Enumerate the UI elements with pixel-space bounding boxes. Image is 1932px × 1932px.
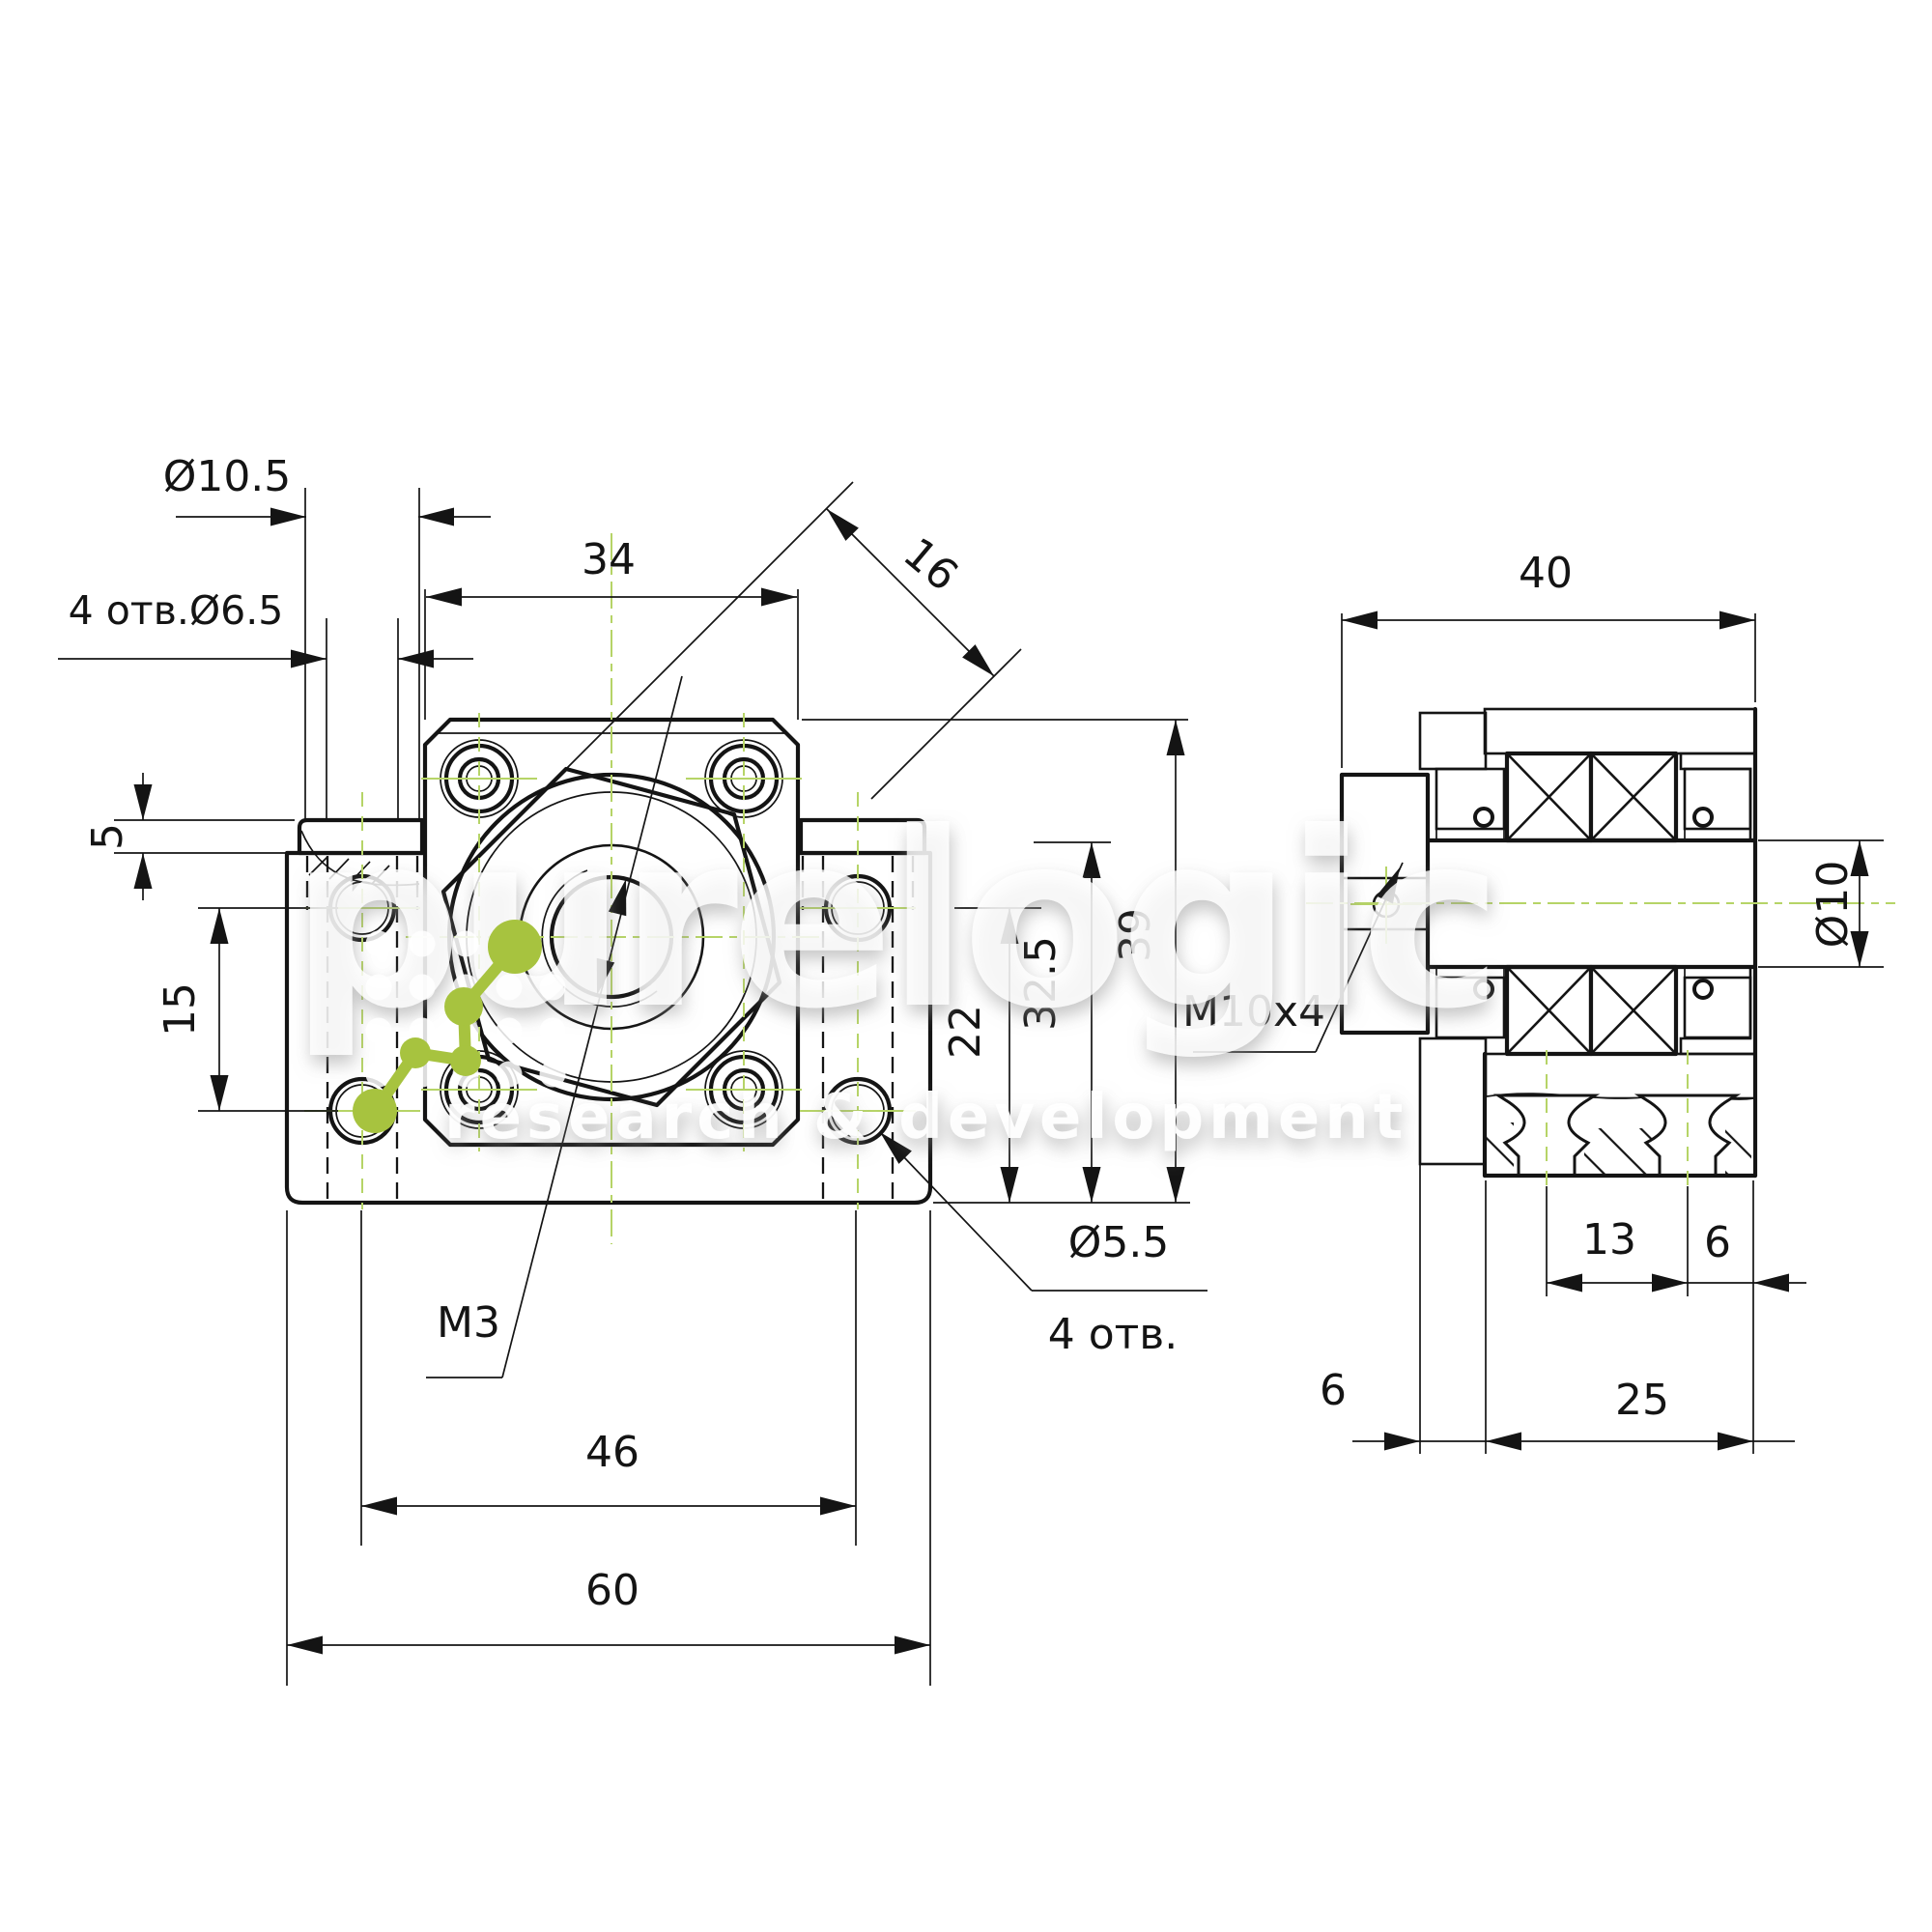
dim-flange-width: 34 [582, 535, 636, 584]
dim-base-hole-spacing-v: 15 [156, 982, 205, 1037]
dim-flange-lip: 6 [1320, 1366, 1347, 1415]
dim-thread-m3: M3 [437, 1298, 500, 1348]
dim-hole-pitch: 13 [1582, 1215, 1636, 1264]
dim-depth-total: 40 [1519, 549, 1573, 598]
dim-hole-spacing-h: 46 [585, 1428, 639, 1477]
technical-drawing-page: Ø10.5 4 отв.Ø6.5 34 16 5 15 M3 46 60 Ø5.… [0, 0, 1932, 1932]
dim-body-depth: 25 [1615, 1376, 1669, 1425]
watermark: purelogic research & development [290, 781, 1495, 1153]
dim-shaft-bore: Ø10 [1808, 861, 1858, 949]
dim-corner-hole-dia: Ø5.5 [1068, 1218, 1170, 1267]
watermark-tagline: research & development [444, 1082, 1407, 1153]
dim-edge-offset-right: 6 [1704, 1218, 1731, 1267]
dim-base-width: 60 [585, 1566, 639, 1615]
dim-base-holes: 4 отв.Ø6.5 [69, 587, 284, 634]
dim-step-height: 5 [83, 823, 132, 850]
dim-corner-hole-count: 4 отв. [1048, 1310, 1178, 1359]
side-base-section [1485, 1054, 1755, 1176]
ballscrew-support-drawing: Ø10.5 4 отв.Ø6.5 34 16 5 15 M3 46 60 Ø5.… [0, 0, 1932, 1932]
dim-hex-flat: 16 [894, 528, 967, 601]
dim-counterbore-dia: Ø10.5 [163, 452, 292, 501]
